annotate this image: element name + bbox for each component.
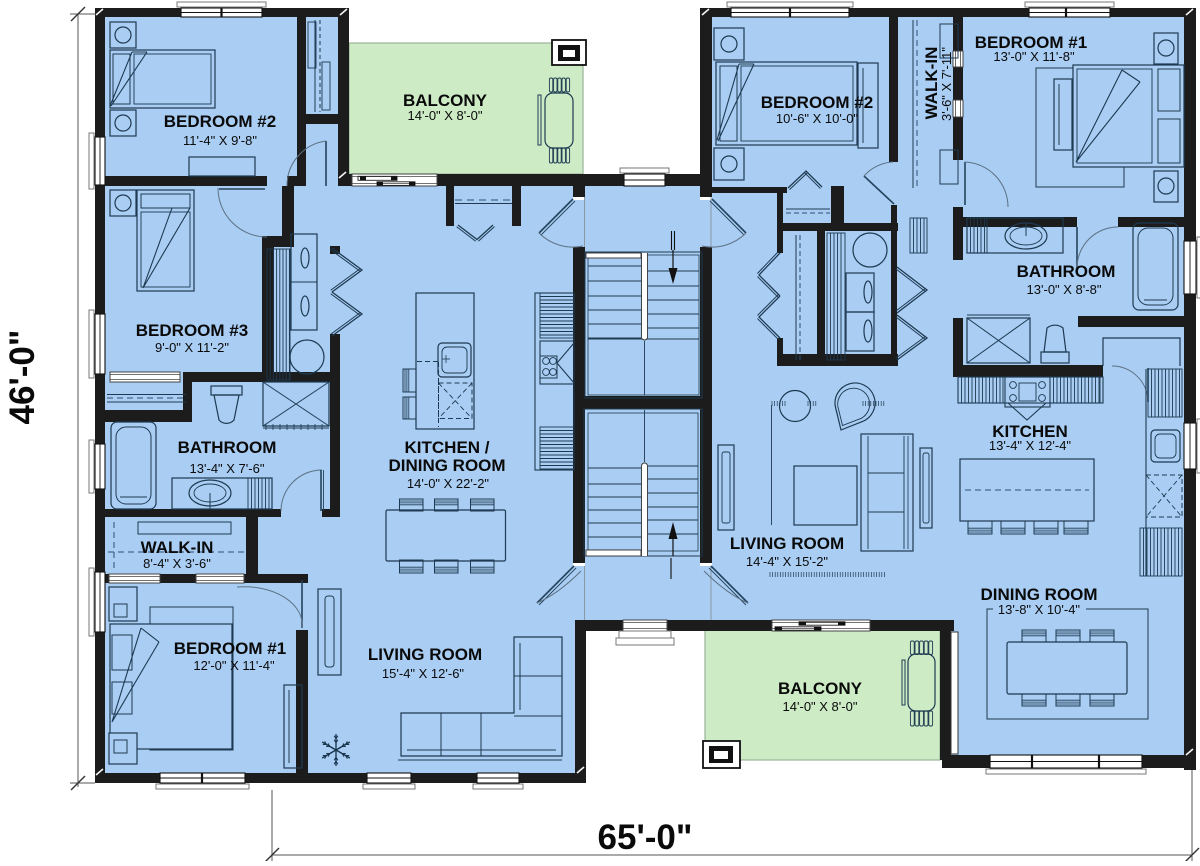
svg-text:BEDROOM #3: BEDROOM #3	[136, 321, 248, 340]
svg-text:8'-4" X 3'-6": 8'-4" X 3'-6"	[143, 556, 211, 571]
svg-text:BEDROOM #1: BEDROOM #1	[174, 639, 286, 658]
svg-text:13'-0" X 11'-8": 13'-0" X 11'-8"	[993, 49, 1075, 64]
svg-text:KITCHEN /: KITCHEN /	[405, 438, 490, 457]
svg-text:3'-6" X 7'-11": 3'-6" X 7'-11"	[939, 47, 954, 121]
svg-text:LIVING ROOM: LIVING ROOM	[730, 534, 844, 553]
svg-text:13'-8" X 10'-4": 13'-8" X 10'-4"	[998, 602, 1081, 617]
svg-text:LIVING ROOM: LIVING ROOM	[368, 645, 482, 664]
svg-text:WALK-IN: WALK-IN	[141, 538, 214, 557]
svg-text:13'-4" X 12'-4": 13'-4" X 12'-4"	[989, 438, 1072, 453]
svg-text:BALCONY: BALCONY	[778, 679, 863, 698]
svg-text:BATHROOM: BATHROOM	[1017, 262, 1116, 281]
svg-text:15'-4" X 12'-6": 15'-4" X 12'-6"	[382, 666, 465, 681]
svg-text:65'-0": 65'-0"	[598, 818, 693, 857]
svg-text:BEDROOM #2: BEDROOM #2	[761, 93, 873, 112]
svg-text:9'-0" X 11'-2": 9'-0" X 11'-2"	[155, 340, 229, 355]
svg-text:13'-0" X 8'-8": 13'-0" X 8'-8"	[1027, 282, 1102, 297]
svg-text:10'-6" X 10'-0": 10'-6" X 10'-0"	[776, 111, 859, 126]
svg-text:14'-0" X 8'-0": 14'-0" X 8'-0"	[783, 699, 858, 714]
svg-text:14'-0" X 22'-2": 14'-0" X 22'-2"	[407, 476, 490, 491]
svg-text:14'-4" X 15'-2": 14'-4" X 15'-2"	[746, 554, 829, 569]
svg-text:13'-4" X 7'-6": 13'-4" X 7'-6"	[190, 461, 265, 476]
svg-text:46'-0": 46'-0"	[3, 330, 42, 425]
svg-text:12'-0" X 11'-4": 12'-0" X 11'-4"	[193, 658, 275, 673]
svg-text:BEDROOM #2: BEDROOM #2	[164, 112, 276, 131]
svg-text:14'-0" X 8'-0": 14'-0" X 8'-0"	[408, 108, 483, 123]
svg-text:11'-4" X 9'-8": 11'-4" X 9'-8"	[183, 133, 257, 148]
svg-text:BATHROOM: BATHROOM	[178, 438, 277, 457]
svg-text:DINING ROOM: DINING ROOM	[388, 456, 505, 475]
